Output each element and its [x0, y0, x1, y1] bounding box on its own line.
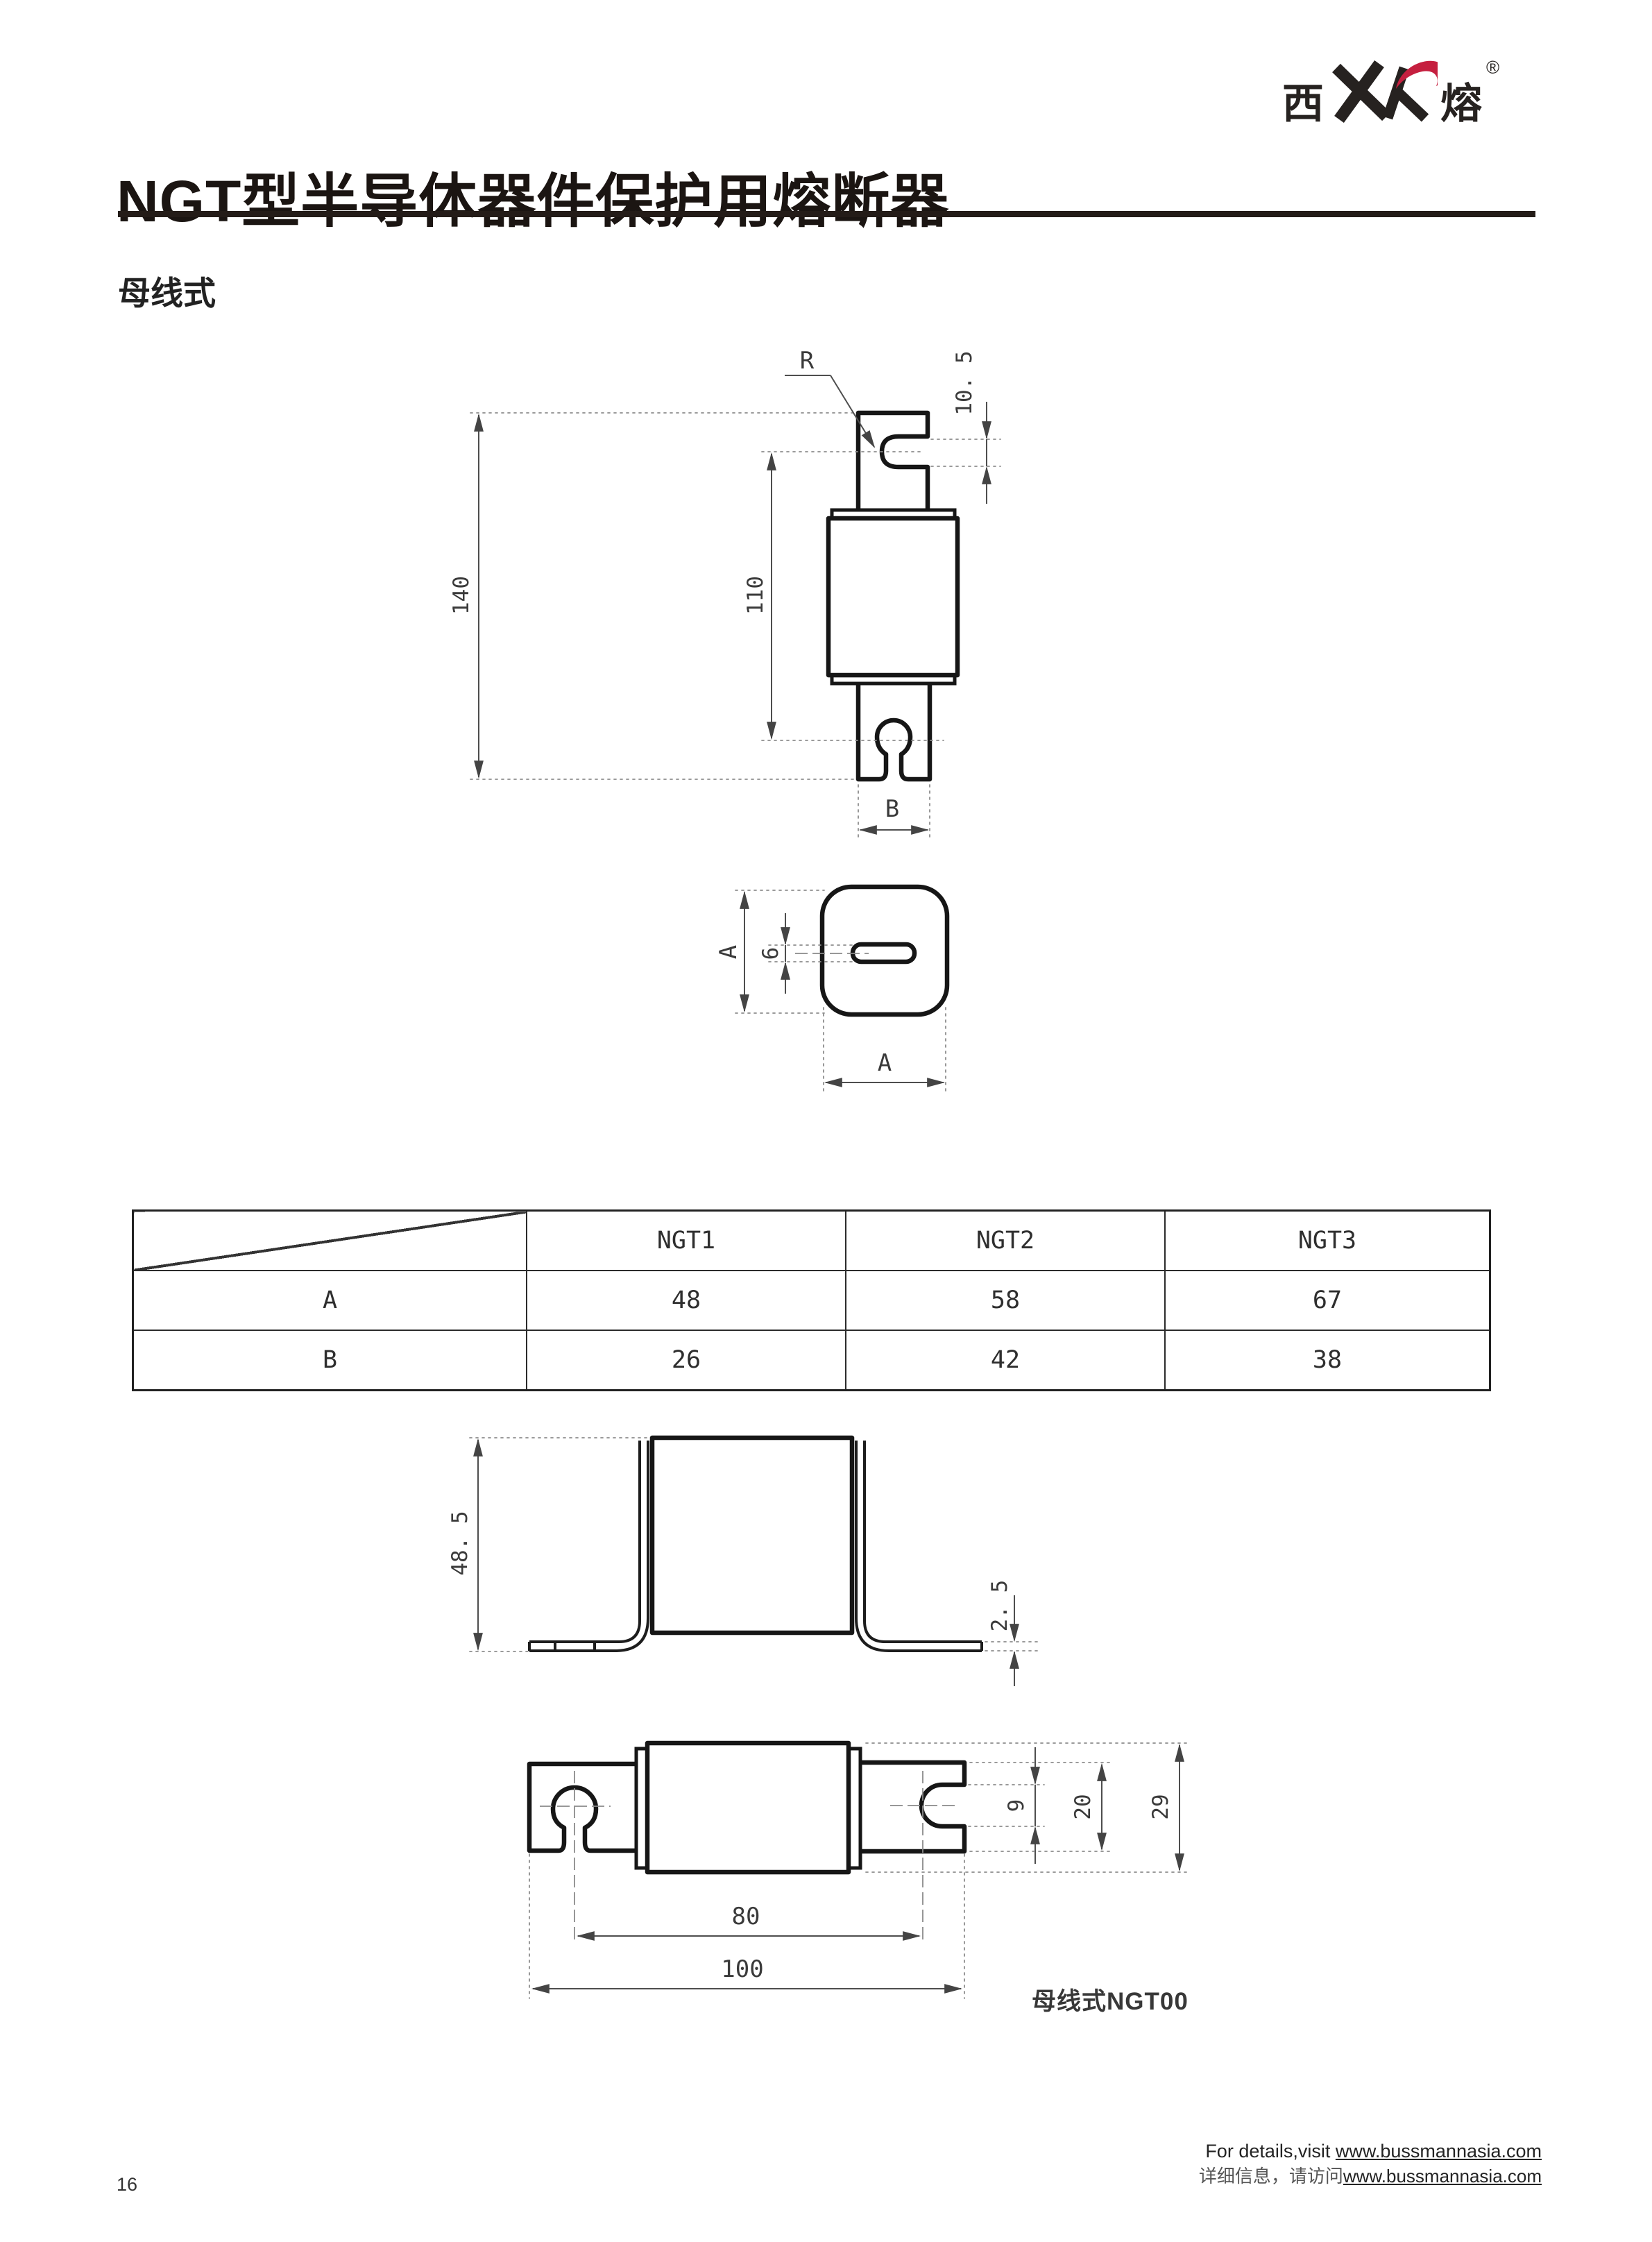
bracket-side-view: 48. 5 2. 5 — [448, 1438, 1037, 1686]
dim-140: 140 — [449, 576, 474, 615]
technical-drawings: 140 110 10. 5 R B — [0, 0, 1652, 2242]
fuse-horizontal-view: 9 20 29 80 100 — [529, 1743, 1190, 1998]
column-header-ngt1: NGT1 — [527, 1211, 846, 1271]
dim-29: 29 — [1148, 1794, 1173, 1819]
footer-line-en: For details,visit www.bussmannasia.com — [1199, 2139, 1542, 2164]
table-row: B 26 42 38 — [133, 1330, 1490, 1391]
table-header-row: NGT1 NGT2 NGT3 — [133, 1211, 1490, 1271]
row-label-B: B — [133, 1330, 527, 1391]
dim-10-5: 10. 5 — [952, 350, 977, 415]
cell-B-ngt3: 38 — [1165, 1330, 1490, 1391]
datasheet-page: 西 熔 ® NGT型半导体器件保护用熔断器 母线式 — [0, 0, 1652, 2242]
drawing-caption-ngt00: 母线式NGT00 — [1032, 1982, 1189, 2017]
dim-110: 110 — [743, 576, 768, 615]
footer-cn-link[interactable]: www.bussmannasia.com — [1343, 2166, 1542, 2186]
table-corner-cell — [133, 1211, 527, 1271]
row-label-A: A — [133, 1271, 527, 1330]
fuse-top-view: A 6 A — [715, 887, 947, 1094]
dim-2-5: 2. 5 — [987, 1580, 1012, 1632]
dim-80: 80 — [732, 1903, 760, 1930]
footer: For details,visit www.bussmannasia.com 详… — [1199, 2139, 1542, 2188]
cell-B-ngt1: 26 — [527, 1330, 846, 1391]
dim-48-5: 48. 5 — [448, 1511, 472, 1575]
dim-20: 20 — [1071, 1794, 1096, 1819]
table-row: A 48 58 67 — [133, 1271, 1490, 1330]
cell-B-ngt2: 42 — [846, 1330, 1165, 1391]
dim-A-side: A — [715, 945, 742, 959]
footer-en-link[interactable]: www.bussmannasia.com — [1336, 2141, 1542, 2162]
dim-100: 100 — [721, 1955, 763, 1983]
dim-radius: R — [800, 347, 815, 375]
fuse-front-view: 140 110 10. 5 R B — [449, 347, 1000, 841]
dim-A-width: A — [878, 1049, 892, 1077]
page-number: 16 — [117, 2174, 137, 2196]
dim-B: B — [885, 795, 899, 823]
footer-cn-text: 详细信息，请访问 — [1199, 2166, 1343, 2186]
column-header-ngt3: NGT3 — [1165, 1211, 1490, 1271]
cell-A-ngt3: 67 — [1165, 1271, 1490, 1330]
column-header-ngt2: NGT2 — [846, 1211, 1165, 1271]
footer-en-text: For details,visit — [1205, 2141, 1336, 2162]
cell-A-ngt2: 58 — [846, 1271, 1165, 1330]
dimension-table: NGT1 NGT2 NGT3 A 48 58 67 B 26 42 38 — [132, 1209, 1491, 1391]
cell-A-ngt1: 48 — [527, 1271, 846, 1330]
dim-9: 9 — [1004, 1799, 1029, 1812]
dim-6: 6 — [758, 947, 783, 960]
footer-line-cn: 详细信息，请访问www.bussmannasia.com — [1199, 2164, 1542, 2188]
